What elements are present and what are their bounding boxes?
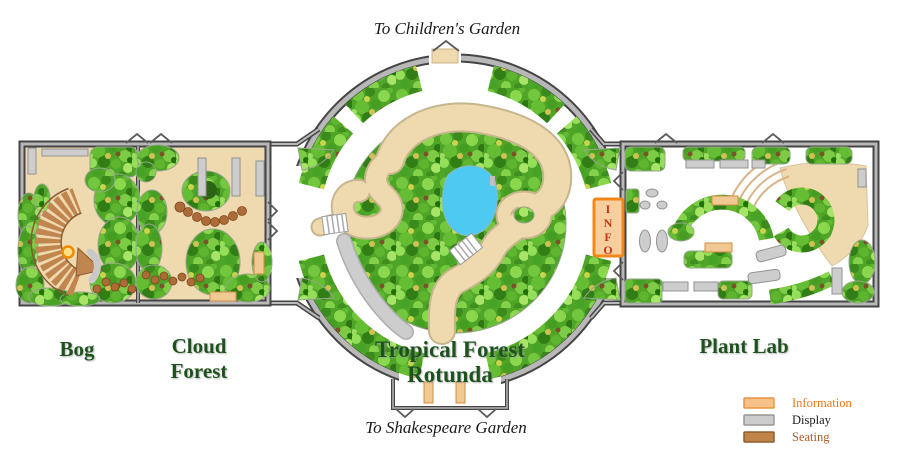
legend-swatch-information [744, 398, 774, 408]
pond-wall [490, 176, 495, 186]
plant-lab-label: Plant Lab [699, 334, 788, 358]
cloud-display-panel [232, 158, 240, 196]
cloud-display-panel [198, 158, 206, 196]
bog-marker [63, 247, 74, 258]
plant-lab-info-desk [712, 196, 738, 205]
cloud-forest-label-line1: Cloud [172, 334, 227, 358]
cloud-forest-label-line2: Forest [171, 359, 228, 383]
cloud-info-desk [210, 292, 236, 301]
rotunda-label-line1: Tropical Forest [375, 337, 525, 362]
conservatory-map-svg: I N F O To Children's Garden To Shakespe… [0, 0, 900, 450]
south-door-chevrons [396, 409, 496, 417]
conservatory-map: I N F O To Children's Garden To Shakespe… [0, 0, 900, 450]
bog-label: Bog [59, 337, 95, 361]
exit-label-top: To Children's Garden [374, 19, 520, 38]
info-letter: N [604, 216, 613, 230]
info-sign: I N F O [594, 199, 623, 257]
bog-display-case [28, 148, 36, 174]
north-entrance [432, 41, 459, 63]
exit-label-bottom: To Shakespeare Garden [365, 418, 526, 437]
legend-swatch-seating [744, 432, 774, 442]
plant-lab-info-desk [705, 243, 732, 252]
rotunda-label-line2: Rotunda [407, 362, 493, 387]
cloud-display-panel [256, 161, 264, 196]
legend-label-information: Information [792, 396, 852, 410]
legend-label-display: Display [792, 413, 832, 427]
legend: Information Display Seating [744, 396, 852, 444]
west-bridge [322, 213, 348, 234]
info-letter: O [603, 243, 612, 257]
legend-label-seating: Seating [792, 430, 830, 444]
bog-display-case [42, 149, 88, 156]
info-letter: I [606, 202, 611, 216]
info-letter: F [604, 230, 611, 244]
pond [442, 166, 497, 236]
legend-swatch-display [744, 415, 774, 425]
cloud-info-desk [254, 252, 264, 274]
